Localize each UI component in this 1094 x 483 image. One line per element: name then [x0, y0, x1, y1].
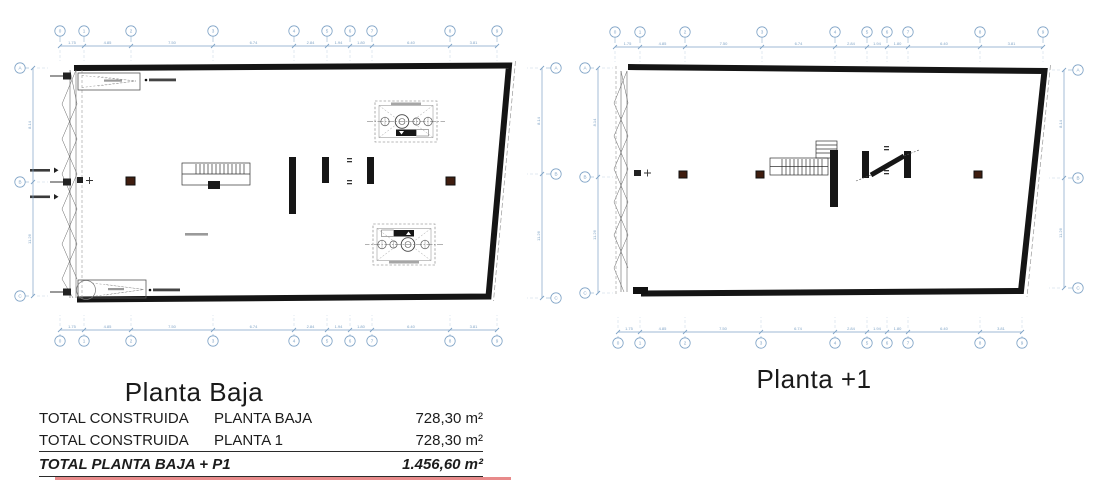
dimension-text: 1 — [83, 339, 86, 344]
dimension-text: 5 — [326, 29, 329, 34]
dimension-text: 9 — [1042, 30, 1045, 35]
dimension-text: 7.50 — [719, 326, 728, 331]
dimension-text: 9 — [1021, 341, 1024, 346]
plan-title-planta-1: Planta +1 — [723, 364, 905, 395]
dimension-text: 4.85 — [659, 41, 668, 46]
dimension-text: 1.75 — [68, 40, 77, 45]
dimension-text: 3.81 — [1008, 41, 1017, 46]
dimension-text: 3.81 — [470, 40, 479, 45]
dimension-text: 6.40 — [940, 326, 949, 331]
dimension-text: 4.85 — [104, 324, 113, 329]
dimension-text: 7 — [907, 341, 910, 346]
total-value: 1.456,60 m² — [371, 456, 483, 473]
dimension-text: 7.50 — [168, 324, 177, 329]
dimension-text: 8 — [449, 339, 452, 344]
dimension-text: 7.50 — [168, 40, 177, 45]
stair-planta-baja — [182, 163, 250, 189]
dimension-text: 2.84 — [847, 326, 856, 331]
dimension-text: 6.74 — [250, 40, 259, 45]
dimension-text: 0 — [614, 30, 617, 35]
plan-planta-1-drawing — [614, 65, 1051, 297]
dimension-text: 5 — [866, 30, 869, 35]
dimension-text: 8.14 — [27, 120, 32, 129]
dimension-text: 1.80 — [894, 326, 903, 331]
dimension-text: 7.50 — [720, 41, 729, 46]
level-mark — [77, 177, 93, 184]
dimension-text: 7 — [371, 339, 374, 344]
total-label: TOTAL PLANTA BAJA + P1 — [39, 456, 326, 473]
wall-anchors — [50, 73, 71, 296]
level-mark — [634, 170, 651, 177]
dimension-text: 3 — [212, 29, 215, 34]
dimension-text: 5 — [326, 339, 329, 344]
dimension-text: 2 — [130, 29, 133, 34]
facade-strip — [614, 66, 628, 295]
row-sublabel: PLANTA 1 — [214, 432, 371, 449]
dimension-text: 6.40 — [940, 41, 949, 46]
ramp-top — [78, 73, 176, 90]
grid-planta-1-bottom: 01.7514.8527.5036.7442.8451.9461.8076.40… — [613, 317, 1027, 348]
grid-planta-baja-right: A8.14B11.26C — [527, 63, 561, 303]
dimension-text: 7 — [371, 29, 374, 34]
dimension-text: 4 — [834, 341, 837, 346]
dimension-text: 3 — [761, 30, 764, 35]
dimension-text: 2 — [684, 341, 687, 346]
dimension-text: 1.80 — [894, 41, 903, 46]
grid-planta-baja-left: A8.14B11.26C — [15, 63, 48, 301]
dimension-text: 4 — [293, 29, 296, 34]
dimension-text: 1 — [639, 30, 642, 35]
dimension-text: 11.26 — [1058, 227, 1063, 237]
dimension-text: 8.14 — [592, 118, 597, 127]
plan-title-planta-baja: Planta Baja — [88, 377, 300, 408]
dimension-text: 8.14 — [1058, 119, 1063, 128]
grid-planta-1-right: A8.14B11.26C — [1049, 65, 1083, 293]
dimension-text: 2 — [684, 30, 687, 35]
table-row: TOTAL CONSTRUIDA PLANTA BAJA 728,30 m² — [39, 407, 483, 429]
dimension-text: 6.74 — [250, 324, 259, 329]
dimension-text: B — [554, 172, 557, 177]
dimension-text: B — [583, 175, 586, 180]
diagonal-wall-group — [856, 146, 919, 181]
dimension-text: 8.14 — [536, 116, 541, 125]
dimension-text: 6 — [886, 341, 889, 346]
dimension-text: 2.84 — [847, 41, 856, 46]
floor-plan-sheet: 01.7514.8527.5036.7442.8451.9461.8076.40… — [0, 0, 1094, 483]
dimension-text: 1.75 — [625, 326, 634, 331]
grid-planta-1-top: 01.7514.8527.5036.7442.8451.9461.8076.40… — [610, 27, 1048, 62]
dimension-text: 11.26 — [592, 229, 597, 239]
dimension-text: 3 — [760, 341, 763, 346]
row-label: TOTAL CONSTRUIDA — [39, 432, 214, 449]
dimension-text: B — [18, 180, 21, 185]
dimension-text: 6.40 — [407, 324, 416, 329]
dimension-text: 4.85 — [104, 40, 113, 45]
room-label — [185, 233, 208, 236]
dimension-text: 6.74 — [794, 326, 803, 331]
dimension-text: 1.80 — [357, 324, 366, 329]
dimension-text: 5 — [866, 341, 869, 346]
grid-planta-baja-top: 01.7514.8527.5036.7442.8451.9461.8076.40… — [55, 26, 502, 61]
dimension-text: 2.84 — [307, 324, 316, 329]
dimension-text: 4 — [834, 30, 837, 35]
dimension-text: 4 — [293, 339, 296, 344]
dimension-text: 2 — [130, 339, 133, 344]
wall-bars — [289, 157, 374, 214]
dimension-text: 8 — [979, 341, 982, 346]
dimension-text: 1.94 — [335, 324, 344, 329]
grid-planta-baja-bottom: 01.7514.8527.5036.7442.8451.9461.8076.40… — [55, 315, 502, 346]
row-value: 728,30 m² — [371, 410, 483, 427]
dimension-text: 4.85 — [659, 326, 668, 331]
stair-wall — [830, 150, 838, 207]
grid-planta-1-left: A8.14B11.26C — [580, 63, 613, 298]
table-row: TOTAL CONSTRUIDA PLANTA 1 728,30 m² — [39, 429, 483, 452]
dimension-text: 1.94 — [873, 41, 882, 46]
dimension-text: 6.74 — [795, 41, 804, 46]
dimension-text: 11.26 — [27, 233, 32, 243]
dimension-text: 6 — [349, 29, 352, 34]
dimension-text: 1.94 — [873, 326, 882, 331]
dimension-text: 2.84 — [307, 40, 316, 45]
dimension-text: 1 — [639, 341, 642, 346]
dimension-text: 3.81 — [470, 324, 479, 329]
corner-notch — [633, 287, 648, 294]
dimension-text: 0 — [617, 341, 620, 346]
row-value: 728,30 m² — [371, 432, 483, 449]
dimension-text: 9 — [496, 339, 499, 344]
row-label: TOTAL CONSTRUIDA — [39, 410, 214, 427]
row-sublabel: PLANTA BAJA — [214, 410, 371, 427]
dimension-text: 9 — [496, 29, 499, 34]
dimension-text: 6.40 — [407, 40, 416, 45]
dimension-text: 11.26 — [536, 230, 541, 240]
dimension-text: 7 — [907, 30, 910, 35]
stair-planta-1 — [770, 141, 837, 175]
fixture-box-top — [367, 101, 445, 142]
dimension-text: 8 — [449, 29, 452, 34]
red-divider-line — [55, 477, 511, 480]
dimension-text: 3 — [212, 339, 215, 344]
area-summary-table: TOTAL CONSTRUIDA PLANTA BAJA 728,30 m² T… — [39, 407, 483, 477]
fixture-box-bottom — [365, 224, 443, 265]
dimension-text: 1.75 — [68, 324, 77, 329]
dimension-text: 0 — [59, 339, 62, 344]
dimension-text: 6 — [349, 339, 352, 344]
dimension-text: B — [1076, 176, 1079, 181]
dimension-text: 6 — [886, 30, 889, 35]
dimension-text: 1.94 — [335, 40, 344, 45]
door-annotations — [30, 168, 59, 200]
dimension-text: 1.75 — [624, 41, 633, 46]
dimension-text: 8 — [979, 30, 982, 35]
dimension-text: 1 — [83, 29, 86, 34]
dimension-text: 0 — [59, 29, 62, 34]
dimension-text: 3.81 — [997, 326, 1006, 331]
dimension-text: 1.80 — [357, 40, 366, 45]
table-total-row: TOTAL PLANTA BAJA + P1 1.456,60 m² — [39, 452, 483, 477]
plan-planta-baja-drawing — [30, 61, 516, 301]
